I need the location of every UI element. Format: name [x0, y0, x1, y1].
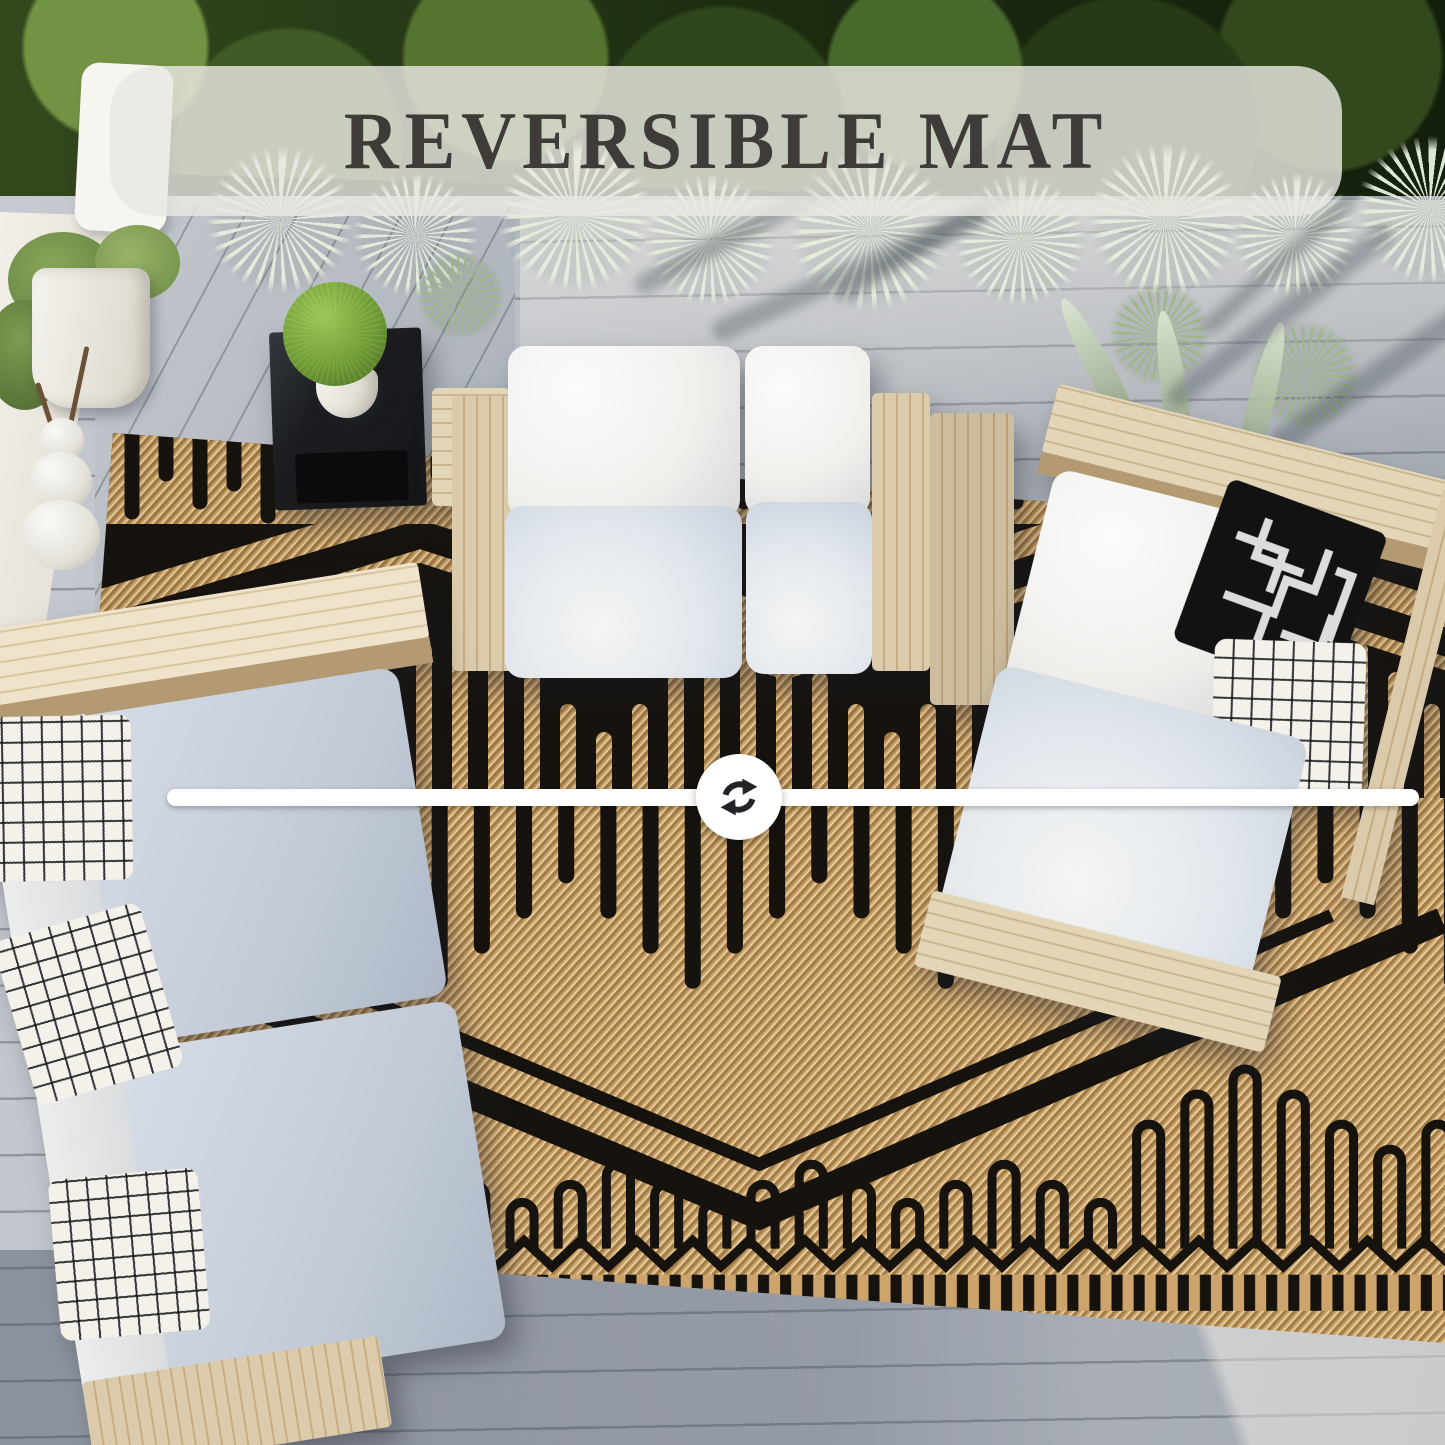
reverse-arrows-icon	[712, 770, 766, 824]
table-shelf	[295, 450, 409, 504]
topiary-ball-plant	[283, 282, 387, 386]
checkered-pillow	[47, 1167, 211, 1341]
center-sofa	[440, 338, 1015, 708]
reversible-divider-line	[167, 789, 1419, 806]
checkered-pillow	[0, 715, 133, 883]
banner: REVERSIBLE MAT	[110, 66, 1342, 216]
seat-cushion	[746, 502, 872, 674]
reverse-icon-badge	[696, 754, 782, 840]
white-plant-pot	[32, 268, 150, 408]
back-cushion	[508, 346, 740, 518]
back-cushion	[745, 346, 870, 516]
banner-title: REVERSIBLE MAT	[344, 94, 1109, 188]
sculpture-vase-bottom	[22, 500, 100, 570]
sofa-arm-right	[872, 393, 930, 671]
seat-cushion	[505, 506, 742, 678]
patio-product-scene: REVERSIBLE MAT	[0, 0, 1445, 1445]
